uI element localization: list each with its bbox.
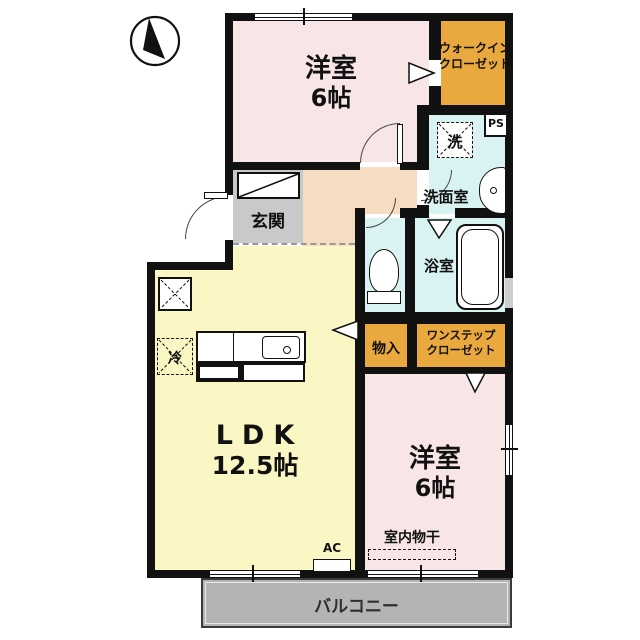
hatch-x <box>158 277 192 311</box>
entrance-door-arc <box>185 196 228 239</box>
shoe-cabinet-diagonal <box>237 172 300 199</box>
onestep-closet-label: ワンステップ クローゼット <box>417 328 505 358</box>
entrance-step-line <box>233 243 355 245</box>
balcony-label: バルコニー <box>201 592 512 617</box>
bedroom-top-size: 6帖 <box>233 84 429 112</box>
kitchen-faucet-dot <box>283 346 291 354</box>
indoor-drying-label: 室内物干 <box>366 527 458 547</box>
toilet-tank-icon <box>367 291 401 304</box>
toilet-bowl-icon <box>369 249 399 293</box>
fridge-label: 冷 <box>157 348 193 368</box>
north-arrow-icon <box>128 14 184 70</box>
walkin-closet-line2: クローゼット <box>439 56 507 72</box>
window <box>505 425 513 475</box>
wall <box>417 105 429 168</box>
kitchen-sink-icon <box>262 336 300 359</box>
bathroom-label: 浴室 <box>415 255 463 276</box>
bedroom-top-label: 洋室 6帖 <box>233 54 429 112</box>
room-hallway-lower <box>303 214 355 246</box>
wall <box>355 367 513 374</box>
bedroom-bottom-label: 洋室 6帖 <box>365 444 505 502</box>
washer-label: 洗 <box>437 131 473 152</box>
wall <box>225 162 360 170</box>
bedroom-top-door-leaf <box>397 124 403 164</box>
walkin-closet-line1: ウォークイン <box>439 40 507 56</box>
wall <box>407 324 417 367</box>
wall <box>225 240 233 262</box>
walkin-closet-label: ウォークイン クローゼット <box>439 40 507 72</box>
ac-label: AC <box>313 541 351 555</box>
ldk-name: LDK <box>155 420 355 451</box>
ldk-door-marker <box>331 320 359 342</box>
wall <box>405 218 415 312</box>
wall <box>400 208 425 218</box>
window <box>368 570 478 578</box>
pipe-space-label: PS <box>484 117 508 130</box>
bathtub-inner <box>461 229 499 305</box>
bedroom-top-name: 洋室 <box>233 54 429 84</box>
wall <box>147 262 155 578</box>
wall <box>147 262 233 270</box>
kitchen-stove-block <box>196 363 242 382</box>
entrance-label: 玄関 <box>233 207 303 232</box>
window-tick <box>303 8 305 25</box>
bathroom-door-marker <box>427 219 453 240</box>
storage-label: 物入 <box>365 338 407 358</box>
onestep-closet-door-marker <box>465 372 487 394</box>
entrance-door-leaf <box>204 192 228 199</box>
ldk-label: LDK 12.5帖 <box>155 420 355 480</box>
indoor-drying-box <box>368 549 456 560</box>
floor-plan: PS 洗 冷 洋室 6帖 ウォークイン <box>0 0 640 640</box>
ldk-size: 12.5帖 <box>155 451 355 480</box>
kitchen-lower-counter <box>242 363 305 382</box>
ac-box <box>313 559 351 572</box>
washroom-label: 洗面室 <box>410 186 482 207</box>
window <box>210 570 300 578</box>
window-tick <box>252 565 254 582</box>
onestep-line1: ワンステップ <box>417 328 505 343</box>
bedroom-bottom-name: 洋室 <box>365 444 505 474</box>
wall <box>355 312 513 324</box>
bedroom-bottom-size: 6帖 <box>365 474 505 502</box>
sink-faucet-dot <box>490 187 497 194</box>
window-tick <box>420 565 422 582</box>
room-hallway-upper <box>303 167 417 214</box>
wall <box>355 208 365 570</box>
bathroom-vent-window <box>505 278 513 308</box>
onestep-line2: クローゼット <box>417 343 505 358</box>
